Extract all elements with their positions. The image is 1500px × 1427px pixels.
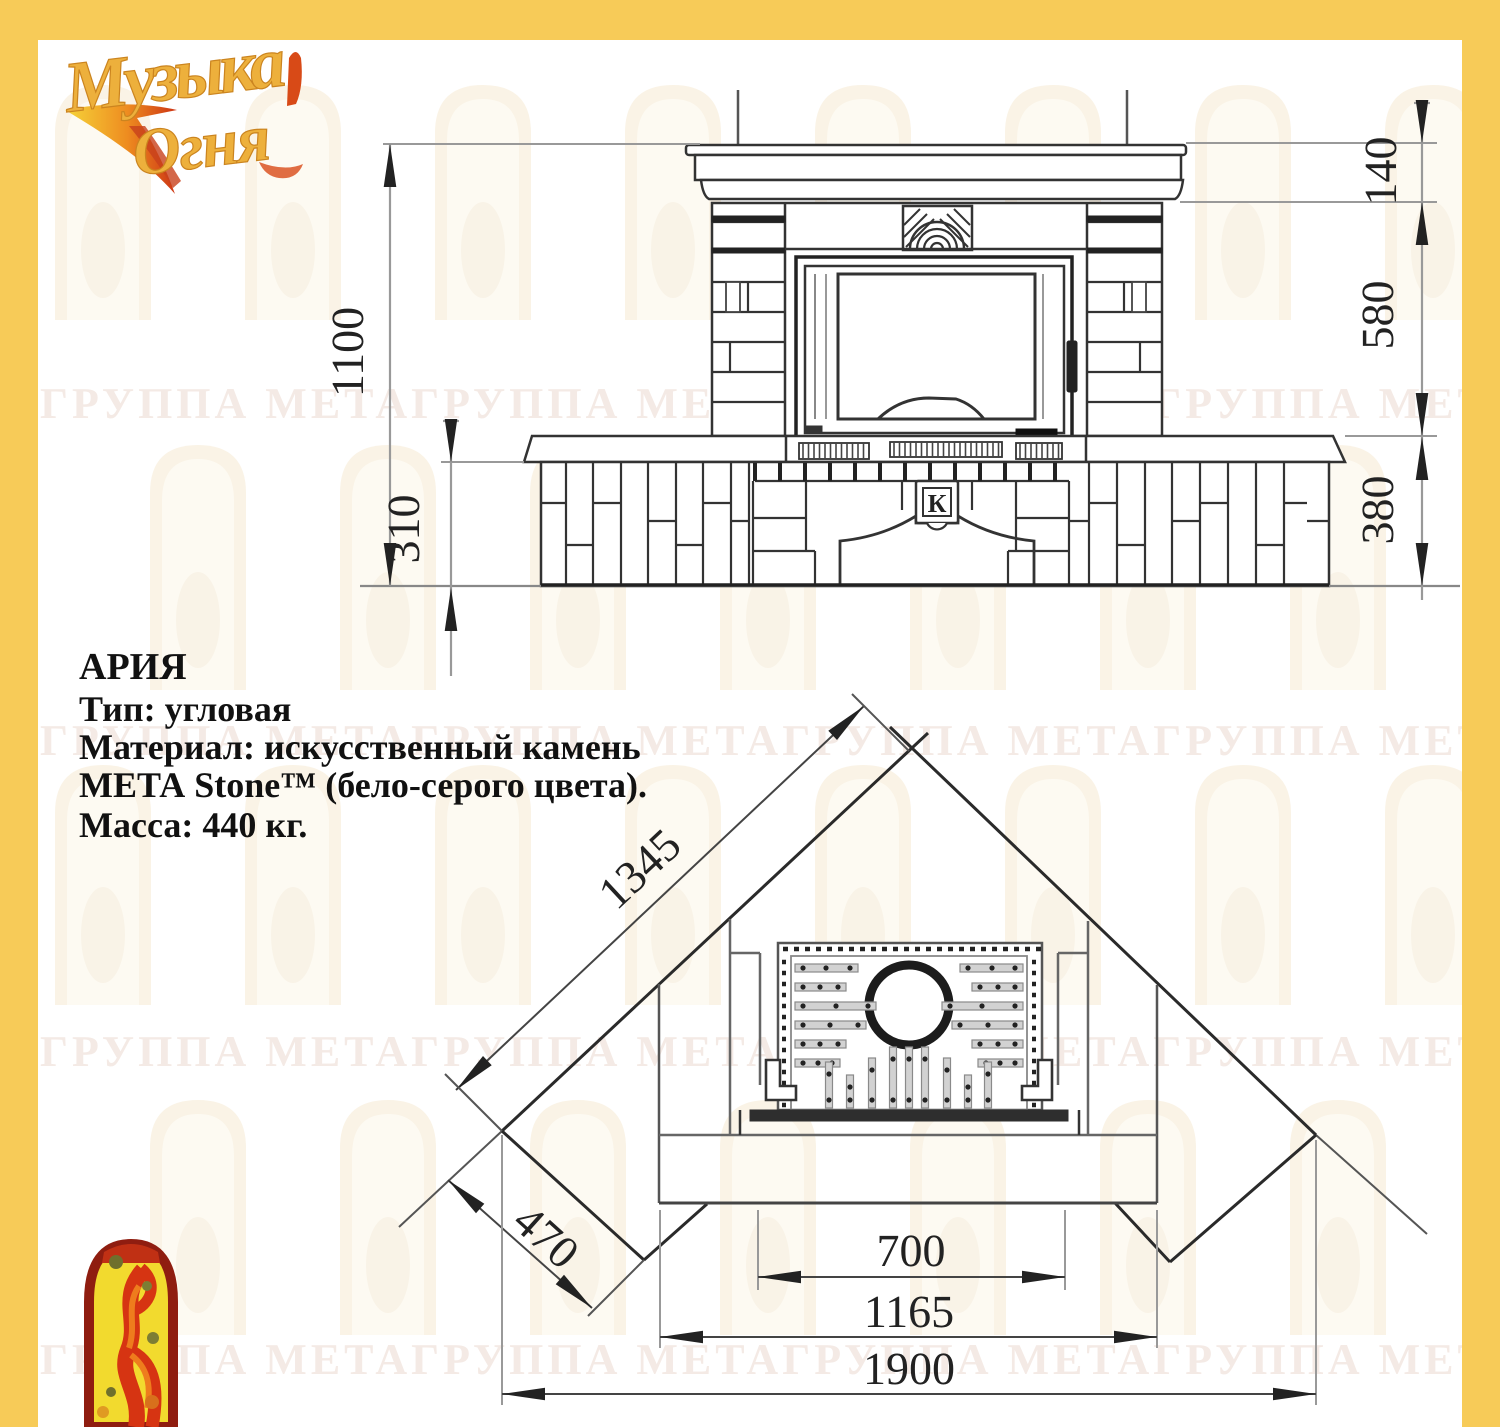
svg-text:1165: 1165 xyxy=(864,1286,954,1337)
svg-text:АРИЯ: АРИЯ xyxy=(79,646,187,688)
svg-text:1900: 1900 xyxy=(863,1343,955,1394)
svg-text:МЕТА Stone™ (бело-серого цвета: МЕТА Stone™ (бело-серого цвета). xyxy=(79,765,647,805)
svg-text:Масса: 440 кг.: Масса: 440 кг. xyxy=(79,805,307,845)
svg-text:К: К xyxy=(928,489,947,518)
svg-text:1100: 1100 xyxy=(322,307,373,397)
svg-text:ГРУППА МЕТАГРУППА МЕТАГРУППА М: ГРУППА МЕТАГРУППА МЕТАГРУППА МЕТАГРУППА … xyxy=(40,1335,1500,1384)
svg-text:Тип: угловая: Тип: угловая xyxy=(79,689,291,729)
svg-text:380: 380 xyxy=(1352,476,1403,545)
svg-text:Материал: искусственный камень: Материал: искусственный камень xyxy=(79,727,641,767)
svg-text:140: 140 xyxy=(1355,137,1406,206)
svg-text:310: 310 xyxy=(378,495,429,564)
svg-text:700: 700 xyxy=(877,1225,946,1276)
svg-text:580: 580 xyxy=(1352,281,1403,350)
